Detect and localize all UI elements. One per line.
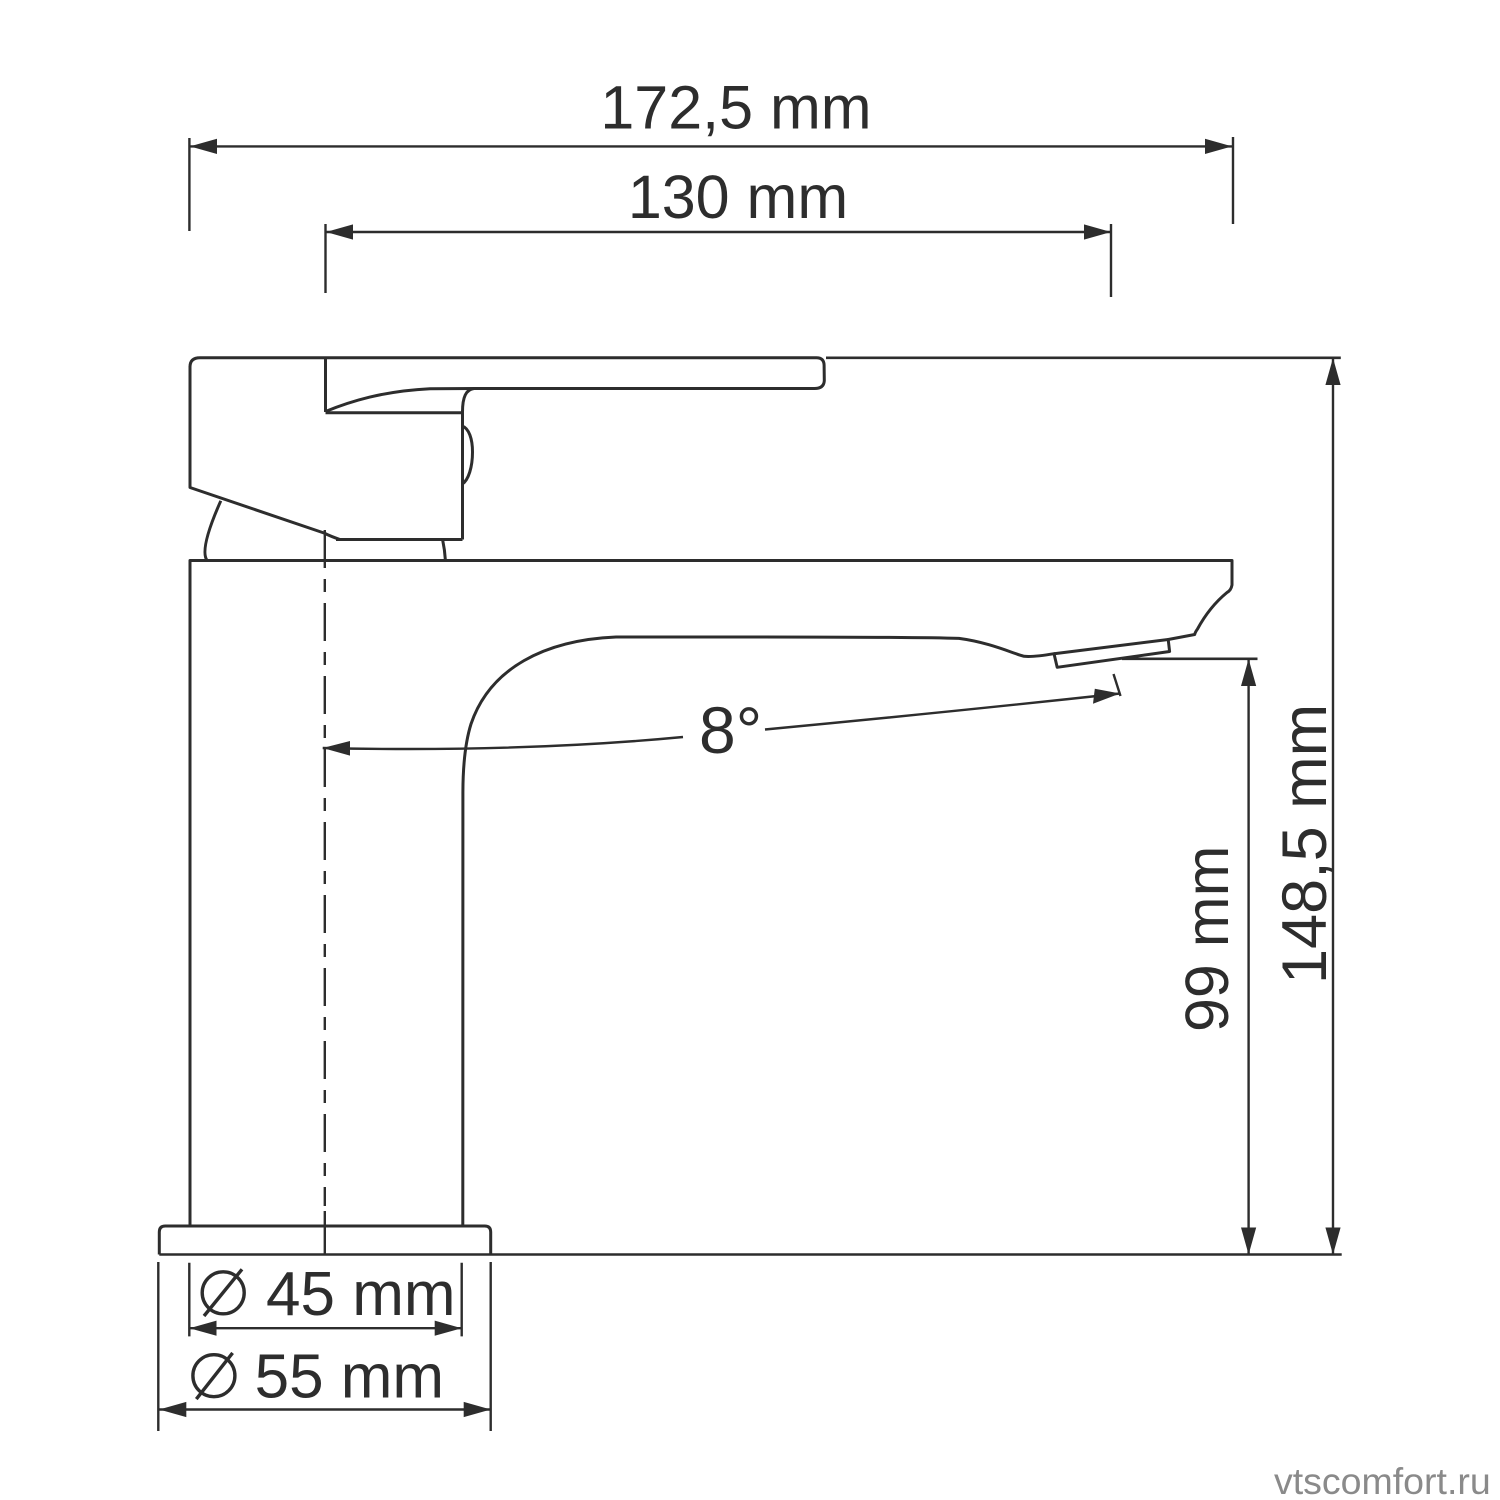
svg-text:99 mm: 99 mm xyxy=(1173,846,1241,1032)
svg-text:vtscomfort.ru: vtscomfort.ru xyxy=(1274,1460,1491,1500)
svg-text:148,5 mm: 148,5 mm xyxy=(1270,704,1340,984)
svg-text:45 mm: 45 mm xyxy=(266,1260,455,1329)
svg-text:130 mm: 130 mm xyxy=(628,163,848,231)
svg-text:55 mm: 55 mm xyxy=(255,1343,444,1412)
svg-text:172,5 mm: 172,5 mm xyxy=(600,74,871,142)
svg-text:8°: 8° xyxy=(699,693,762,767)
